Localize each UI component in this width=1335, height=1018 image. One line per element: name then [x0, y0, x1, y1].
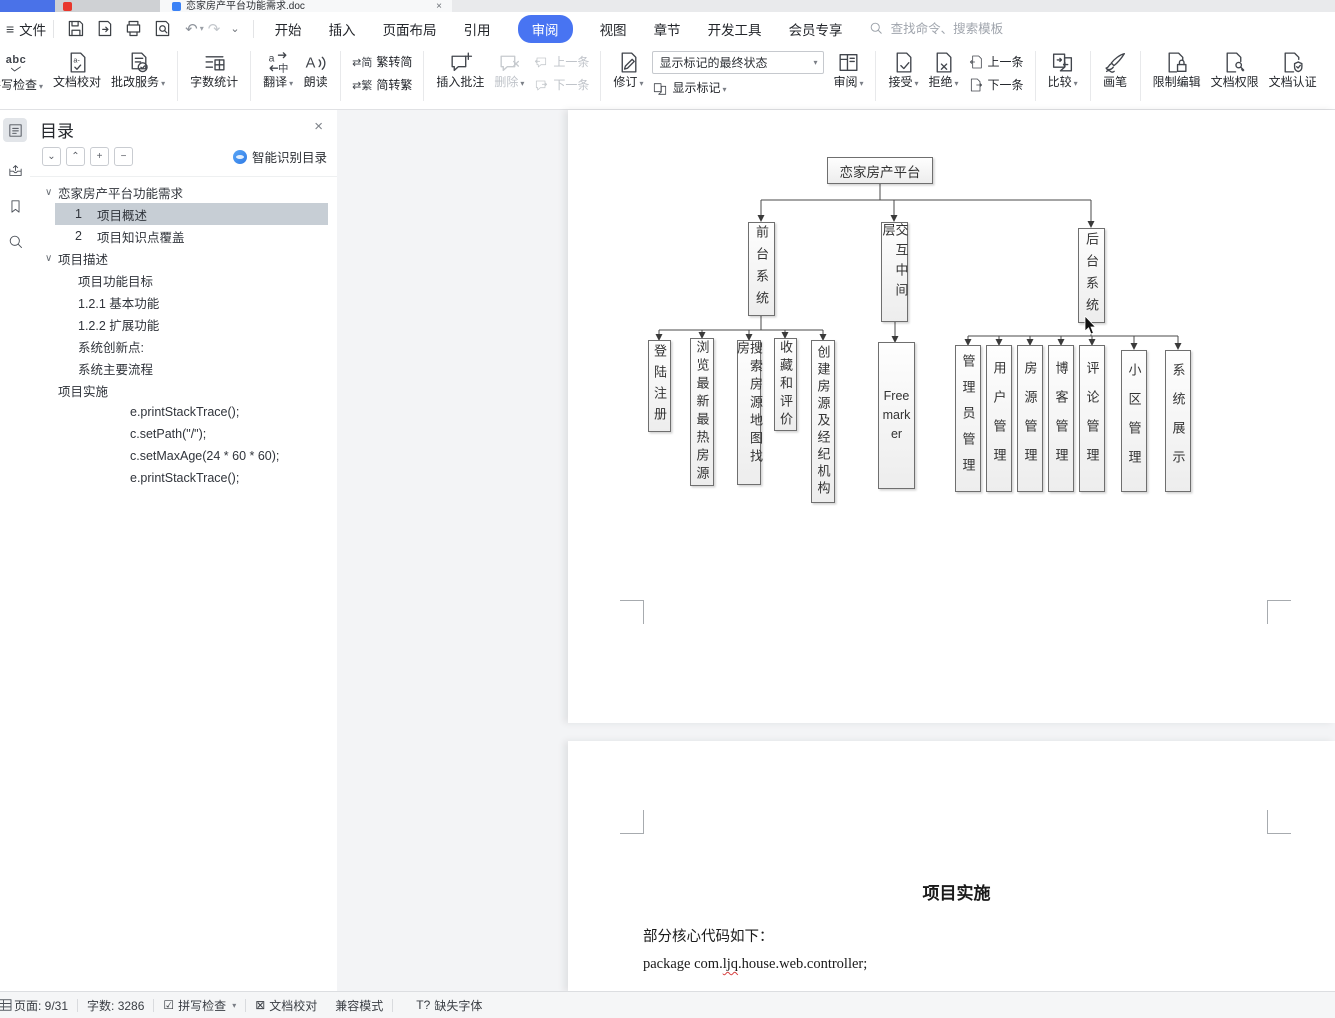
toc-item[interactable]: 2项目知识点覆盖 — [30, 225, 337, 247]
divider — [1035, 51, 1036, 101]
section-heading: 项目实施 — [643, 879, 1270, 904]
shield-icon — [1280, 50, 1305, 75]
dropdown-icon: ▾ — [232, 1001, 236, 1010]
review-ribbon: abc 拼写检查▾ a- 文档校对 批改服务▾ 字数统计 a中 翻译▾ A 朗读… — [0, 45, 1335, 110]
smart-toc-button[interactable]: 智能识别目录 — [233, 147, 327, 166]
outline-icon — [7, 122, 24, 139]
divider — [1140, 51, 1141, 101]
bookmark-icon — [7, 198, 24, 215]
org-leaf: 登陆注册 — [648, 340, 671, 432]
command-search[interactable] — [869, 21, 1033, 37]
toc-item[interactable]: 系统创新点: — [30, 335, 337, 357]
read-aloud-button[interactable]: A 朗读 — [298, 50, 333, 90]
margin-mark — [1267, 810, 1291, 834]
divider — [875, 51, 876, 101]
undo-dropdown-icon[interactable]: ▾ — [200, 24, 204, 33]
tree-caret-icon[interactable]: ∨ — [45, 253, 52, 264]
divider — [53, 20, 54, 38]
brush-button[interactable]: 画笔 — [1098, 50, 1133, 90]
trad-to-simp-button[interactable]: ⇄简 繁转简 — [352, 52, 412, 72]
reject-icon — [931, 50, 956, 75]
comment-delete-icon — [497, 50, 522, 75]
translate-icon: a中 — [266, 50, 291, 75]
file-menu-button[interactable]: ≡ 文件 — [6, 19, 46, 39]
divider — [423, 51, 424, 101]
org-leaf: 博客管理 — [1048, 345, 1074, 492]
word-count-button[interactable]: 字数统计 — [185, 50, 243, 90]
toc-tree: ∨ 恋家房产平台功能需求 1项目概述 2项目知识点覆盖 ∨ 项目描述 项目功能目… — [30, 176, 337, 992]
check-panel-button[interactable] — [3, 158, 27, 182]
doc-permission-button[interactable]: 文档权限 — [1206, 50, 1264, 90]
save-button[interactable] — [65, 18, 86, 39]
toc-item[interactable]: c.setMaxAge(24 * 60 * 60); — [30, 445, 337, 467]
svg-text:A: A — [306, 56, 316, 72]
divider — [77, 999, 78, 1012]
trad-to-simp-icon: ⇄简 — [352, 54, 372, 70]
divider — [250, 51, 251, 101]
spellcheck-icon: abc — [4, 51, 29, 76]
comment-add-icon — [448, 50, 473, 75]
org-box-back: 后台系统 — [1078, 228, 1105, 323]
restrict-edit-button[interactable]: 限制编辑 — [1148, 50, 1206, 90]
divider — [245, 999, 246, 1012]
tab-references[interactable]: 引用 — [464, 19, 491, 39]
doc-cert-button[interactable]: 文档认证 — [1264, 50, 1322, 90]
org-leaf-freemarker: Freemarker — [878, 342, 915, 489]
expand-all-button[interactable]: + — [90, 147, 109, 166]
org-leaf: 管理员管理 — [955, 345, 981, 492]
review-pane-icon — [836, 50, 861, 75]
doc-proof-toggle[interactable]: ⊠ 文档校对 — [255, 997, 317, 1014]
brush-icon — [1103, 50, 1128, 75]
checkbox-checked-icon: ☑ — [163, 998, 174, 1012]
markup-state-select[interactable]: 显示标记的最终状态 ▾ — [652, 51, 824, 74]
collapse-up-button[interactable]: ⌃ — [66, 147, 85, 166]
document-tab-title: 恋家房产平台功能需求.doc — [186, 2, 305, 12]
org-leaf: 用户管理 — [986, 345, 1012, 492]
home-tab[interactable] — [0, 0, 55, 12]
document-tab[interactable]: 恋家房产平台功能需求.doc × — [160, 0, 452, 12]
document-page-2: 项目实施 部分核心代码如下： package com.ljq.house.web… — [568, 741, 1335, 992]
divider — [153, 999, 154, 1012]
side-icon-strip — [0, 110, 31, 992]
next-comment-button: 下一条 — [533, 75, 589, 95]
org-leaf: 收藏和评价 — [774, 338, 797, 431]
print-preview-button[interactable] — [152, 18, 173, 39]
divider — [1090, 51, 1091, 101]
status-bar: 页面: 9/31 字数: 3286 ☑ 拼写检查 ▾ ⊠ 文档校对 兼容模式 T… — [0, 991, 1335, 1018]
spell-check-toggle[interactable]: ☑ 拼写检查 ▾ — [163, 997, 236, 1014]
ribbon-tabs: 开始 插入 页面布局 引用 审阅 视图 章节 开发工具 会员专享 — [275, 15, 843, 43]
toc-panel: 目录 × ⌄ ⌃ + − 智能识别目录 ∨ 恋家房产平台功能需求 1项目概述 2… — [30, 110, 338, 992]
missing-font-button[interactable]: T? 缺失字体 — [416, 997, 482, 1014]
margin-mark — [620, 810, 644, 834]
paragraph: 部分核心代码如下： — [643, 925, 774, 946]
accept-icon — [891, 50, 916, 75]
prev-change-button[interactable]: 上一条 — [968, 52, 1024, 72]
tab-membership[interactable]: 会员专享 — [789, 19, 843, 39]
delete-comment-button: 删除▾ — [489, 50, 529, 91]
org-leaf: 创建房源及经纪机构 — [811, 340, 835, 503]
toc-item[interactable]: 项目功能目标 — [30, 269, 337, 291]
document-page-1: 恋家房产平台 前台系统 交互中间层 后台系统 登陆注册 浏览最新最热房源 搜索房… — [568, 110, 1335, 723]
doc-proofread-button[interactable]: a- 文档校对 — [48, 50, 106, 90]
tab-page-layout[interactable]: 页面布局 — [383, 19, 437, 39]
toc-item[interactable]: ∨ 项目描述 — [30, 247, 337, 269]
tab-dev-tools[interactable]: 开发工具 — [708, 19, 762, 39]
key-icon — [1222, 50, 1247, 75]
compare-icon — [1050, 50, 1075, 75]
accept-button[interactable]: 接受▾ — [883, 50, 923, 91]
markup-column: 显示标记的最终状态 ▾ 显示标记▾ — [648, 50, 828, 99]
org-chart-connectors — [568, 110, 1308, 570]
expand-down-button[interactable]: ⌄ — [42, 147, 61, 166]
svg-text:a: a — [268, 53, 274, 64]
toc-panel-button[interactable] — [3, 118, 27, 142]
toc-item[interactable]: 1.2.1 基本功能 — [30, 291, 337, 313]
toc-item[interactable]: 系统主要流程 — [30, 357, 337, 379]
compare-button[interactable]: 比较▾ — [1043, 50, 1083, 91]
export-button[interactable] — [94, 18, 115, 39]
track-changes-icon — [616, 50, 641, 75]
toc-item[interactable]: c.setPath("/"); — [30, 423, 337, 445]
org-leaf: 房源管理 — [1017, 345, 1043, 492]
org-leaf: 系统展示 — [1165, 350, 1191, 492]
org-leaf: 搜索房源地图找房 — [737, 340, 761, 485]
next-change-button[interactable]: 下一条 — [968, 75, 1024, 95]
margin-mark — [1267, 600, 1291, 624]
crossed-box-icon: ⊠ — [255, 998, 265, 1012]
bookmark-panel-button[interactable] — [3, 194, 27, 218]
collapse-all-button[interactable]: − — [114, 147, 133, 166]
store-icon — [63, 2, 72, 11]
close-tab-icon[interactable]: × — [436, 2, 442, 12]
svg-text:a-: a- — [73, 56, 80, 65]
divider — [340, 51, 341, 101]
undo-button[interactable]: ↶ — [185, 20, 198, 38]
org-leaf: 小区管理 — [1121, 350, 1147, 492]
page-indicator: 页面: 9/31 — [14, 997, 68, 1014]
comment-next-icon — [533, 77, 549, 93]
insert-comment-button[interactable]: 插入批注 — [431, 50, 489, 90]
customize-toolbar-icon[interactable]: ⌄ — [230, 22, 239, 35]
review-pane-button[interactable]: 审阅▾ — [828, 50, 868, 91]
missing-font-icon: T? — [416, 998, 430, 1012]
toc-panel-title: 目录 — [40, 117, 74, 142]
smart-toc-icon — [233, 150, 247, 164]
toc-item-selected[interactable]: 1项目概述 — [55, 203, 328, 225]
word-count-icon — [202, 50, 227, 75]
print-button[interactable] — [123, 18, 144, 39]
template-store-tab[interactable] — [55, 0, 168, 12]
convert-stack: ⇄简 繁转简 ⇄繁 简转繁 — [348, 50, 416, 95]
misspelled-word: ljq — [723, 956, 738, 972]
change-next-icon — [968, 77, 984, 93]
tab-home[interactable]: 开始 — [275, 19, 302, 39]
simp-to-trad-icon: ⇄繁 — [352, 77, 372, 93]
code-line: package com.ljq.house.web.controller; — [643, 956, 867, 973]
tab-section[interactable]: 章节 — [654, 19, 681, 39]
divider — [253, 20, 254, 38]
toc-item[interactable]: e.printStackTrace(); — [30, 401, 337, 423]
window-tab-strip: 恋家房产平台功能需求.doc × — [0, 0, 1335, 12]
translate-button[interactable]: a中 翻译▾ — [258, 50, 298, 91]
close-icon[interactable]: × — [314, 118, 323, 135]
org-box-front: 前台系统 — [748, 222, 775, 316]
show-markup-button[interactable]: 显示标记▾ — [652, 79, 824, 99]
correction-service-button[interactable]: 批改服务▾ — [106, 50, 170, 91]
show-markup-icon — [652, 81, 668, 97]
status-menu-icon[interactable] — [0, 996, 14, 1014]
toc-item[interactable]: 1.2.2 扩展功能 — [30, 313, 337, 335]
search-icon — [869, 21, 884, 36]
change-prev-icon — [968, 54, 984, 70]
menu-bar: ≡ 文件 ↶ ▾ ↷ ⌄ 开始 插入 页面布局 引用 审阅 视图 章节 开发工具… — [0, 12, 1335, 45]
prev-comment-button: 上一条 — [533, 52, 589, 72]
track-changes-button[interactable]: 修订▾ — [608, 50, 648, 91]
mouse-cursor — [1084, 316, 1098, 336]
svg-text:中: 中 — [278, 62, 288, 75]
menu-icon: ≡ — [6, 21, 14, 37]
comment-prev-icon — [533, 54, 549, 70]
change-nav-stack: 上一条 下一条 — [964, 50, 1028, 95]
combo-caret-icon: ▾ — [813, 58, 817, 67]
org-box-middle: 交互中间层 — [881, 222, 908, 322]
compat-mode-indicator[interactable]: 兼容模式 — [335, 997, 383, 1014]
doc-icon — [172, 2, 181, 11]
lock-icon — [1164, 50, 1189, 75]
word-count-indicator: 字数: 3286 — [87, 997, 144, 1014]
read-aloud-icon: A — [303, 50, 328, 75]
toc-item[interactable]: ∨ 恋家房产平台功能需求 — [30, 181, 337, 203]
find-panel-button[interactable] — [3, 229, 27, 253]
org-leaf: 浏览最新最热房源 — [690, 338, 714, 486]
org-box-root: 恋家房产平台 — [827, 157, 933, 184]
tab-insert[interactable]: 插入 — [329, 19, 356, 39]
divider — [177, 51, 178, 101]
search-icon — [7, 233, 24, 250]
simp-to-trad-button[interactable]: ⇄繁 简转繁 — [352, 75, 412, 95]
org-leaf: 评论管理 — [1079, 345, 1105, 492]
redo-button: ↷ — [208, 20, 221, 38]
tree-caret-icon[interactable]: ∨ — [45, 187, 52, 198]
divider — [392, 999, 393, 1012]
comment-nav-stack: 上一条 下一条 — [529, 50, 593, 95]
doc-proofread-icon: a- — [65, 50, 90, 75]
correction-service-icon — [126, 50, 151, 75]
tab-review[interactable]: 审阅 — [518, 15, 573, 43]
reject-button[interactable]: 拒绝▾ — [924, 50, 964, 91]
toc-item[interactable]: 项目实施 — [30, 379, 337, 401]
toc-item[interactable]: e.printStackTrace(); — [30, 467, 337, 489]
spell-check-button[interactable]: abc 拼写检查▾ — [0, 50, 48, 94]
divider — [600, 51, 601, 101]
tab-view[interactable]: 视图 — [600, 19, 627, 39]
task-tray-icon — [7, 162, 24, 179]
search-input[interactable] — [889, 21, 1033, 37]
margin-mark — [620, 600, 644, 624]
